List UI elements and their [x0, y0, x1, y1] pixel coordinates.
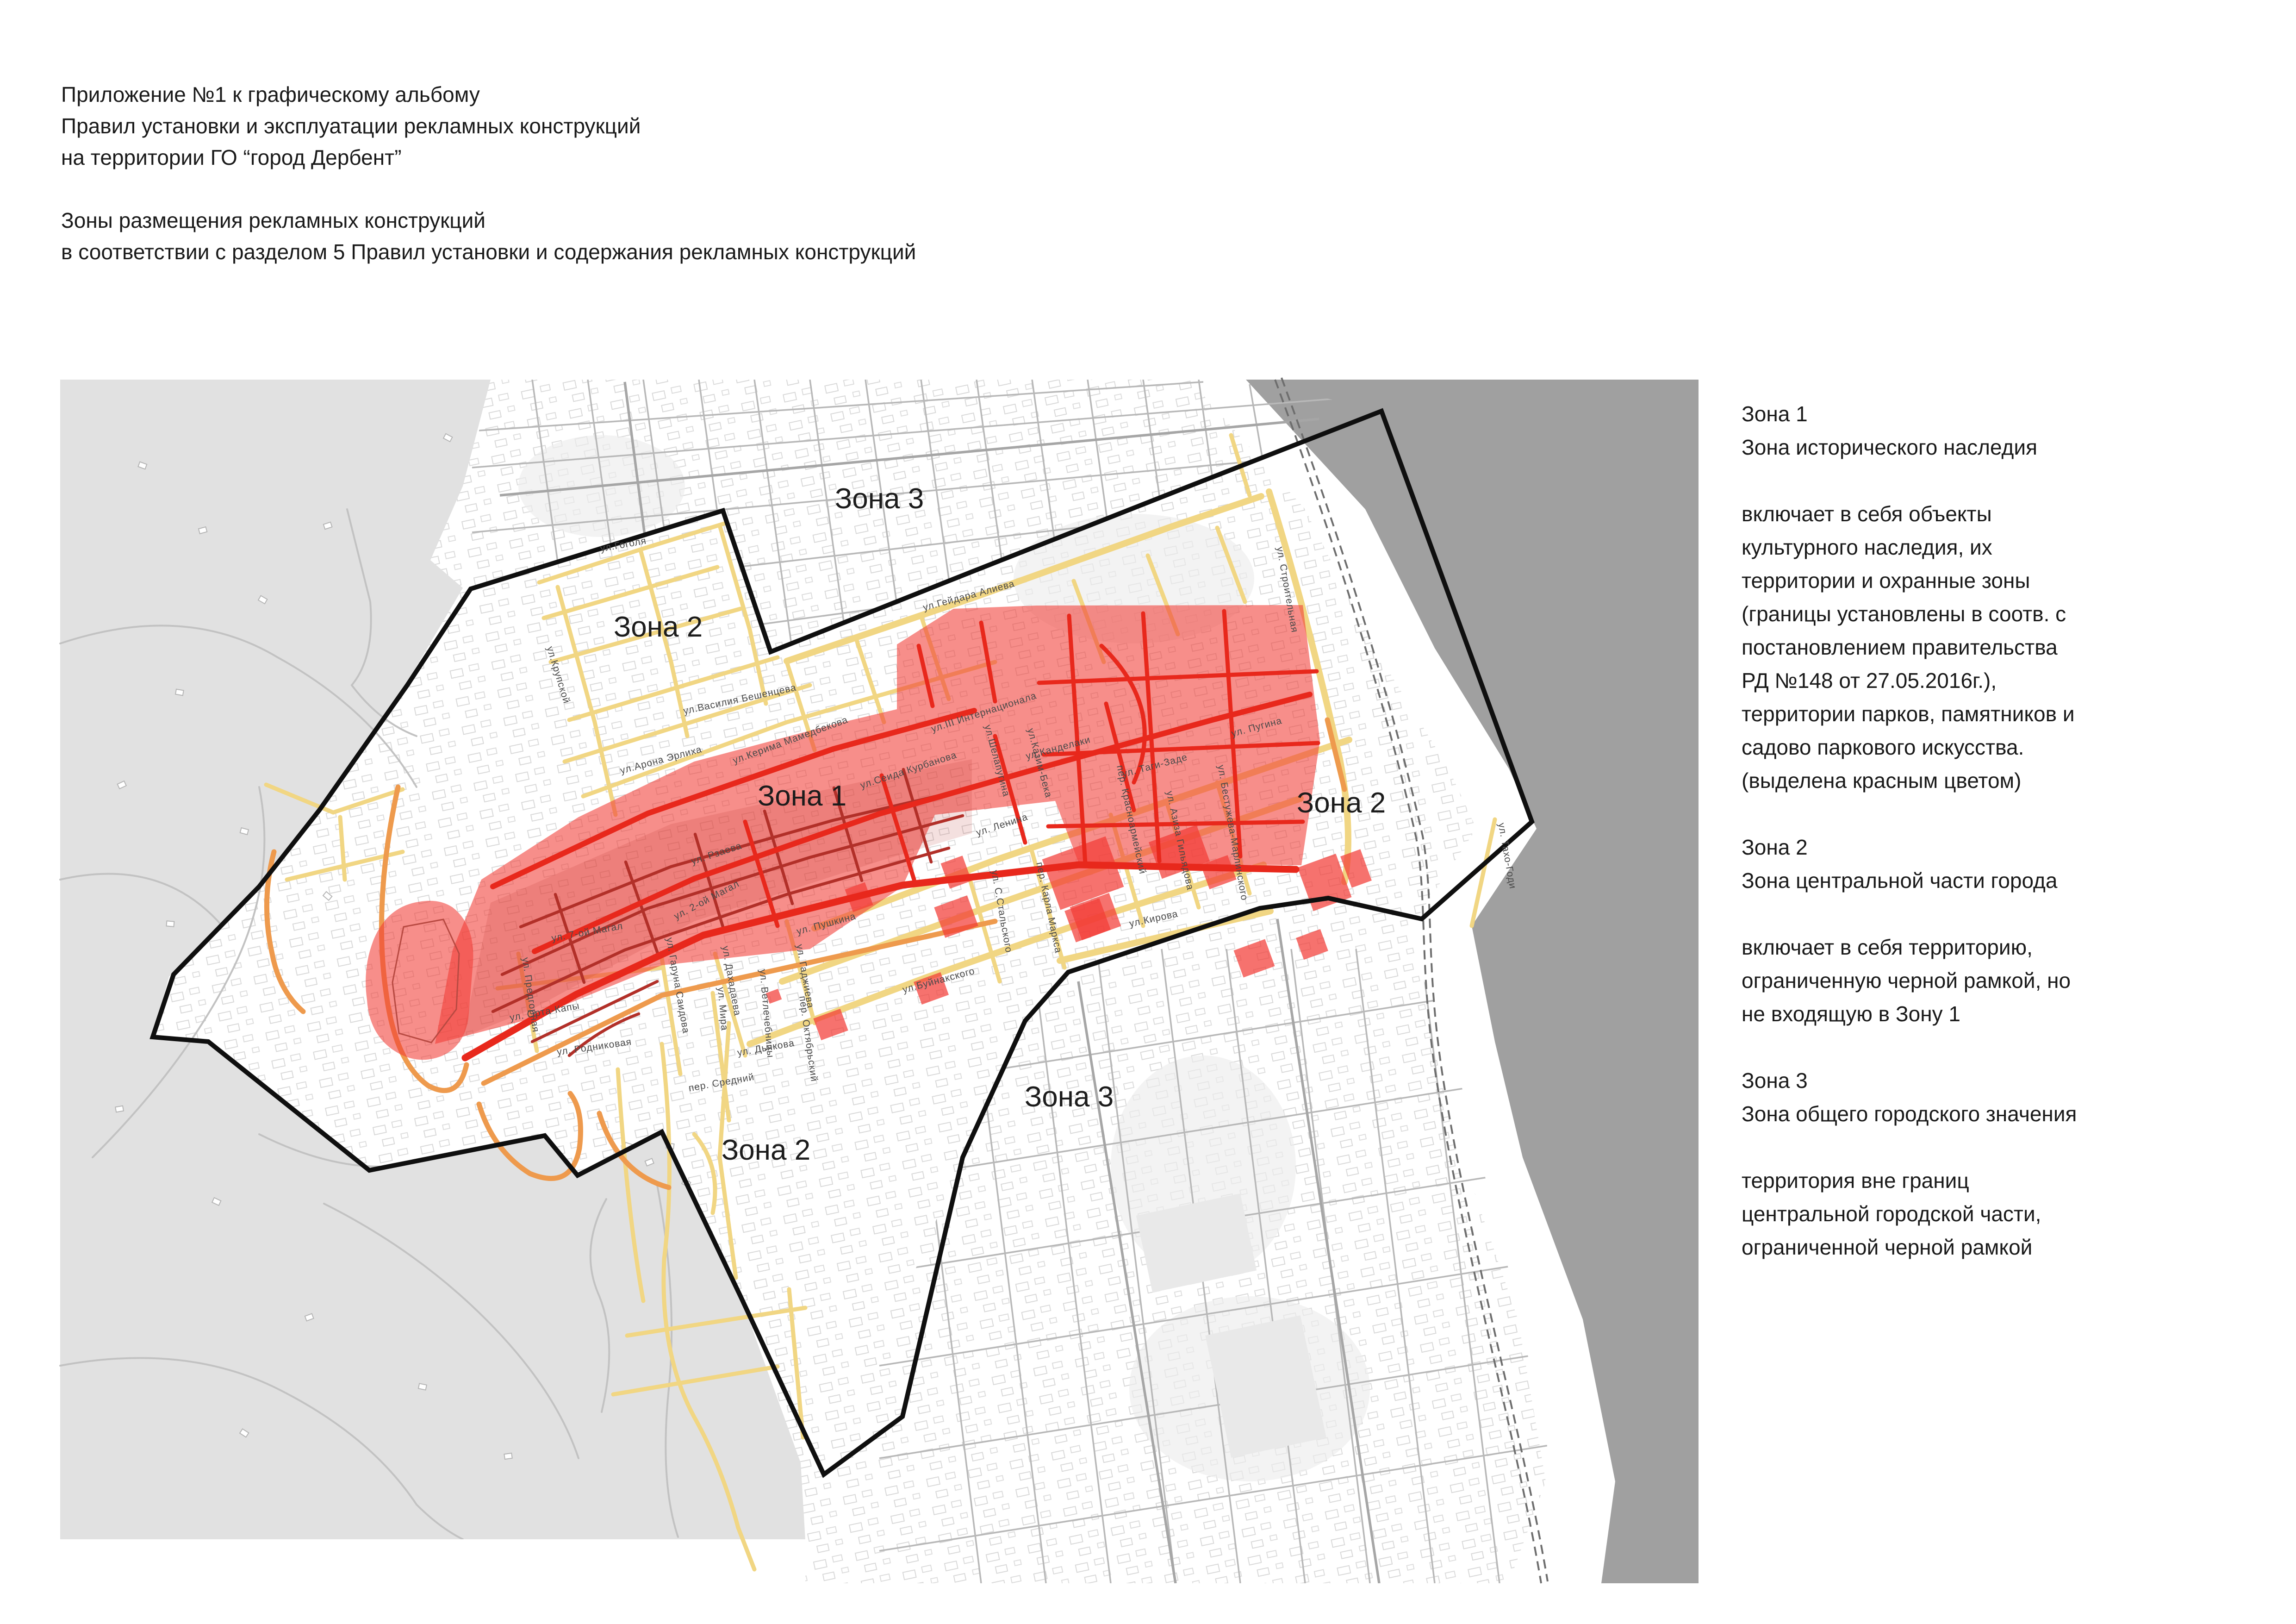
legend-body-line: территория вне границ	[1742, 1164, 2278, 1197]
legend-body-line: РД №148 от 27.05.2016г.),	[1742, 664, 2278, 697]
legend-body-line: территории парков, памятников и	[1742, 697, 2278, 731]
legend-zone1-body: включает в себя объектыкультурного насле…	[1742, 497, 2278, 797]
zone-area-label: Зона 3	[835, 483, 924, 515]
legend-body-line: (границы установлены в соотв. с	[1742, 597, 2278, 631]
legend-zone1-title: Зона 1	[1742, 397, 2278, 431]
legend-body-line: центральной городской части,	[1742, 1197, 2278, 1230]
legend-zone2-body: включает в себя территорию,ограниченную …	[1742, 931, 2278, 1031]
legend-body-line: постановлением правительства	[1742, 631, 2278, 664]
legend-panel: Зона 1 Зона исторического наследия включ…	[1742, 397, 2278, 1297]
legend-zone1-subtitle: Зона исторического наследия	[1742, 431, 2278, 464]
zone-area-label: Зона 2	[614, 611, 703, 643]
zone-area-label: Зона 3	[1025, 1081, 1114, 1113]
legend-zone3-body: территория вне границцентральной городск…	[1742, 1164, 2278, 1264]
legend-body-line: ограниченной черной рамкой	[1742, 1230, 2278, 1264]
legend-zone2: Зона 2 Зона центральной части города вкл…	[1742, 831, 2278, 1031]
legend-zone2-title: Зона 2	[1742, 831, 2278, 864]
zone-area-label: Зона 2	[722, 1134, 810, 1166]
legend-body-line: (выделена красным цветом)	[1742, 764, 2278, 797]
zone-area-label: Зона 1	[758, 780, 846, 812]
zone-area-label: Зона 2	[1297, 787, 1386, 819]
legend-body-line: не входящую в Зону 1	[1742, 997, 2278, 1031]
legend-zone3: Зона 3 Зона общего городского значения т…	[1742, 1064, 2278, 1264]
legend-zone1: Зона 1 Зона исторического наследия включ…	[1742, 397, 2278, 797]
legend-body-line: ограниченную черной рамкой, но	[1742, 964, 2278, 997]
legend-body-line: территории и охранные зоны	[1742, 564, 2278, 597]
legend-zone3-title: Зона 3	[1742, 1064, 2278, 1097]
legend-body-line: включает в себя территорию,	[1742, 931, 2278, 964]
fortress-area	[366, 901, 473, 1060]
legend-zone2-subtitle: Зона центральной части города	[1742, 864, 2278, 897]
legend-body-line: садово паркового искусства.	[1742, 731, 2278, 764]
legend-body-line: культурного наследия, их	[1742, 531, 2278, 564]
legend-body-line: включает в себя объекты	[1742, 497, 2278, 531]
legend-zone3-subtitle: Зона общего городского значения	[1742, 1097, 2278, 1131]
